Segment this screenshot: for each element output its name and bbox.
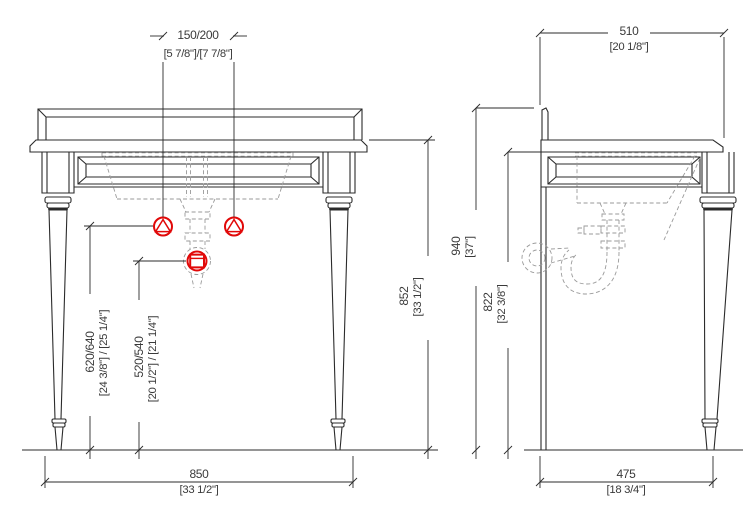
dim-total-height-inch: [37"] [464, 236, 476, 258]
dim-counter-height-mm: 852 [397, 286, 411, 306]
front-right-leg [323, 152, 355, 450]
side-backsplash [542, 108, 548, 140]
front-view [22, 109, 438, 450]
side-sink-bowl [575, 153, 700, 240]
dim-faucet-spacing-inch: [5 7/8"]/[7 7/8"] [164, 48, 233, 60]
dim-overall-width-mm: 850 [189, 467, 209, 481]
dimension-texts: 150/200 [5 7/8"]/[7 7/8"] 510 [20 1/8"] … [83, 24, 649, 496]
dim-drain-height-mm: 520/540 [132, 336, 146, 378]
dim-underside-height-inch: [32 3/8"] [496, 284, 508, 323]
dim-supply-height-mm: 620/640 [83, 331, 97, 373]
side-view [524, 108, 743, 450]
side-front-leg [700, 152, 736, 450]
front-sink-bowl [102, 153, 293, 199]
front-backsplash [38, 109, 362, 140]
dim-leg-depth-mm: 475 [616, 467, 636, 481]
connection-symbols [154, 218, 243, 271]
water-supply-symbol-left [154, 218, 172, 236]
dim-underside-height-mm: 822 [481, 292, 495, 312]
dim-total-height-mm: 940 [449, 236, 463, 256]
dim-drain-height-inch: [20 1/2"] / [21 1/4"] [147, 316, 159, 403]
side-back-edge [541, 152, 546, 450]
dim-counter-depth-mm: 510 [619, 24, 639, 38]
water-supply-symbol-right [225, 218, 243, 236]
dim-overall-width-inch: [33 1/2"] [180, 484, 219, 496]
dim-supply-height-inch: [24 3/8"] / [25 1/4"] [98, 310, 110, 397]
dim-leg-depth-inch: [18 3/4"] [607, 484, 646, 496]
side-trap-plumbing [522, 203, 626, 294]
front-countertop [30, 140, 367, 152]
waste-outlet-symbol [188, 252, 207, 271]
front-left-leg [42, 152, 74, 450]
side-apron [541, 157, 702, 187]
dim-counter-height-inch: [33 1/2"] [412, 277, 424, 316]
dim-counter-depth-inch: [20 1/8"] [610, 41, 649, 53]
front-apron [74, 157, 323, 187]
dim-faucet-spacing-mm: 150/200 [177, 28, 219, 42]
side-countertop [541, 140, 723, 152]
technical-drawing-canvas: 150/200 [5 7/8"]/[7 7/8"] 510 [20 1/8"] … [0, 0, 755, 513]
drawing-sheet: 150/200 [5 7/8"]/[7 7/8"] 510 [20 1/8"] … [0, 0, 755, 513]
